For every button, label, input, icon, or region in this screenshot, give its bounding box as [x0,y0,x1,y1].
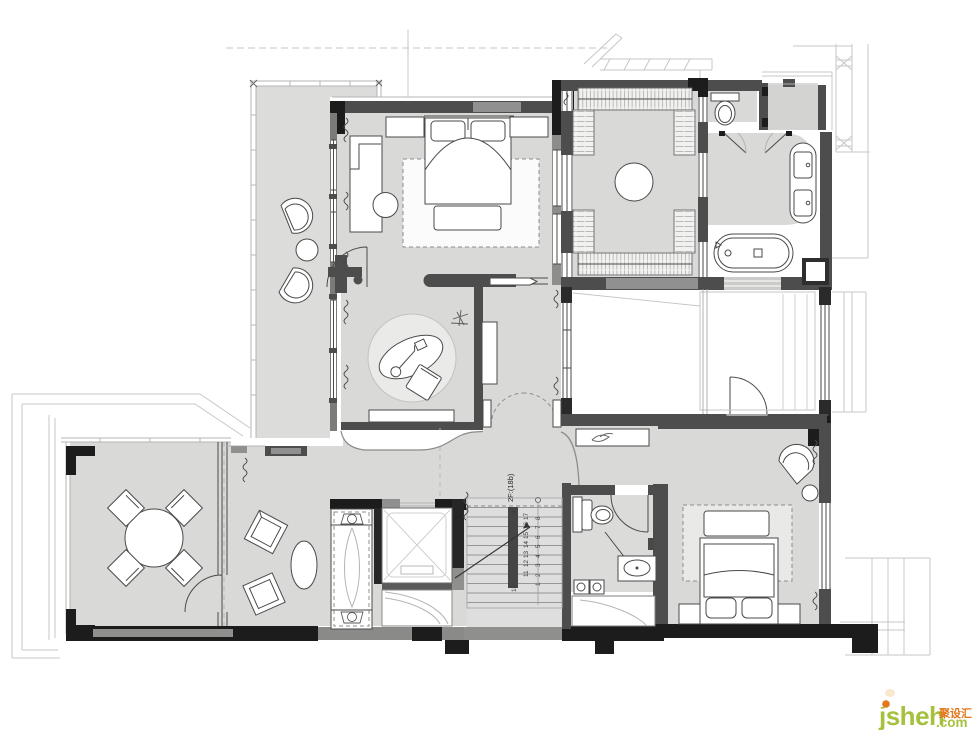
svg-text:10: 10 [511,584,518,592]
svg-text:8: 8 [535,516,542,520]
svg-text:1: 1 [535,582,542,586]
svg-text:13: 13 [523,550,530,558]
svg-text:12: 12 [523,559,530,567]
svg-text:2F:(18b): 2F:(18b) [506,473,515,502]
svg-text:5: 5 [535,544,542,548]
svg-text:17: 17 [523,512,530,520]
svg-text:14: 14 [523,540,530,548]
svg-text:6: 6 [535,535,542,539]
svg-text:9: 9 [511,510,518,514]
svg-text:4: 4 [535,554,542,558]
svg-text:2: 2 [535,573,542,577]
svg-text:7: 7 [535,525,542,529]
svg-text:3: 3 [535,563,542,567]
svg-text:15: 15 [523,531,530,539]
svg-text:16: 16 [523,521,530,529]
svg-text:.com: .com [936,715,968,730]
svg-text:11: 11 [523,570,530,577]
